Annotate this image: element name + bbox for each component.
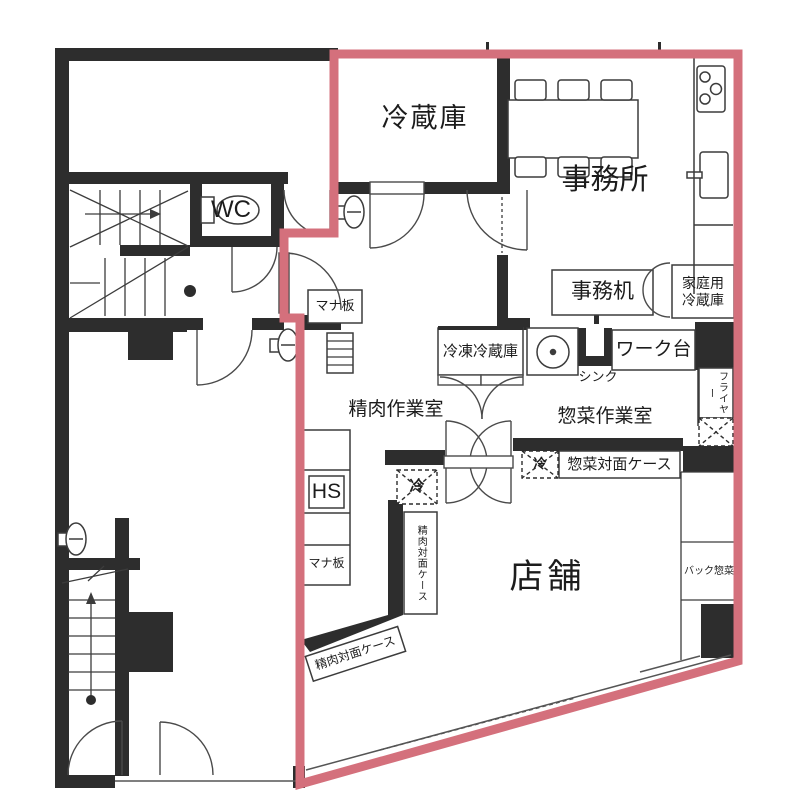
fixture-label-cutting-board-upper: マナ板 xyxy=(308,290,362,323)
room-label-store: 店舗 xyxy=(500,556,595,600)
cold-mark-2: 冷 xyxy=(522,451,558,478)
fixture-label-hand-sink: HS xyxy=(303,472,350,512)
fixture-label-cutting-board-lower: マナ板 xyxy=(303,545,350,583)
fixture-label-back-deli: バック惣菜 xyxy=(681,562,737,582)
fixture-label-meat-display-case-side: 精肉対面ケース xyxy=(405,514,436,612)
cold-mark-1: 冷 xyxy=(397,470,437,504)
room-label-refrigerator: 冷蔵庫 xyxy=(370,102,480,136)
fixture-label-freezer-refrigerator: 冷凍冷蔵庫 xyxy=(438,328,523,375)
fixture-label-sink: シンク xyxy=(570,368,626,386)
room-label-office: 事務所 xyxy=(550,163,660,199)
fixture-label-work-table: ワーク台 xyxy=(612,330,695,370)
room-label-meat-workroom: 精肉作業室 xyxy=(344,398,448,422)
fixture-label-deli-display-case: 惣菜対面ケース xyxy=(559,451,680,478)
gas-stove-icon xyxy=(697,66,725,112)
room-label-deli-workroom: 惣菜作業室 xyxy=(553,405,657,429)
door-panel-icon xyxy=(687,152,728,198)
room-label-wc: WC xyxy=(206,196,256,224)
fixture-label-office-desk: 事務机 xyxy=(552,270,653,315)
sink-basin xyxy=(586,328,604,356)
fixture-label-household-refrigerator: 家庭用 冷蔵庫 xyxy=(672,265,734,318)
lower-stairs-arrow xyxy=(86,592,96,705)
fixture-label-fryer: フライヤー xyxy=(700,369,732,417)
floor-plan-canvas: 冷蔵庫 事務所 WC 事務机 家庭用 冷蔵庫 マナ板 冷凍冷蔵庫 シンク ワーク… xyxy=(0,0,788,800)
storefront-lines xyxy=(115,655,731,781)
